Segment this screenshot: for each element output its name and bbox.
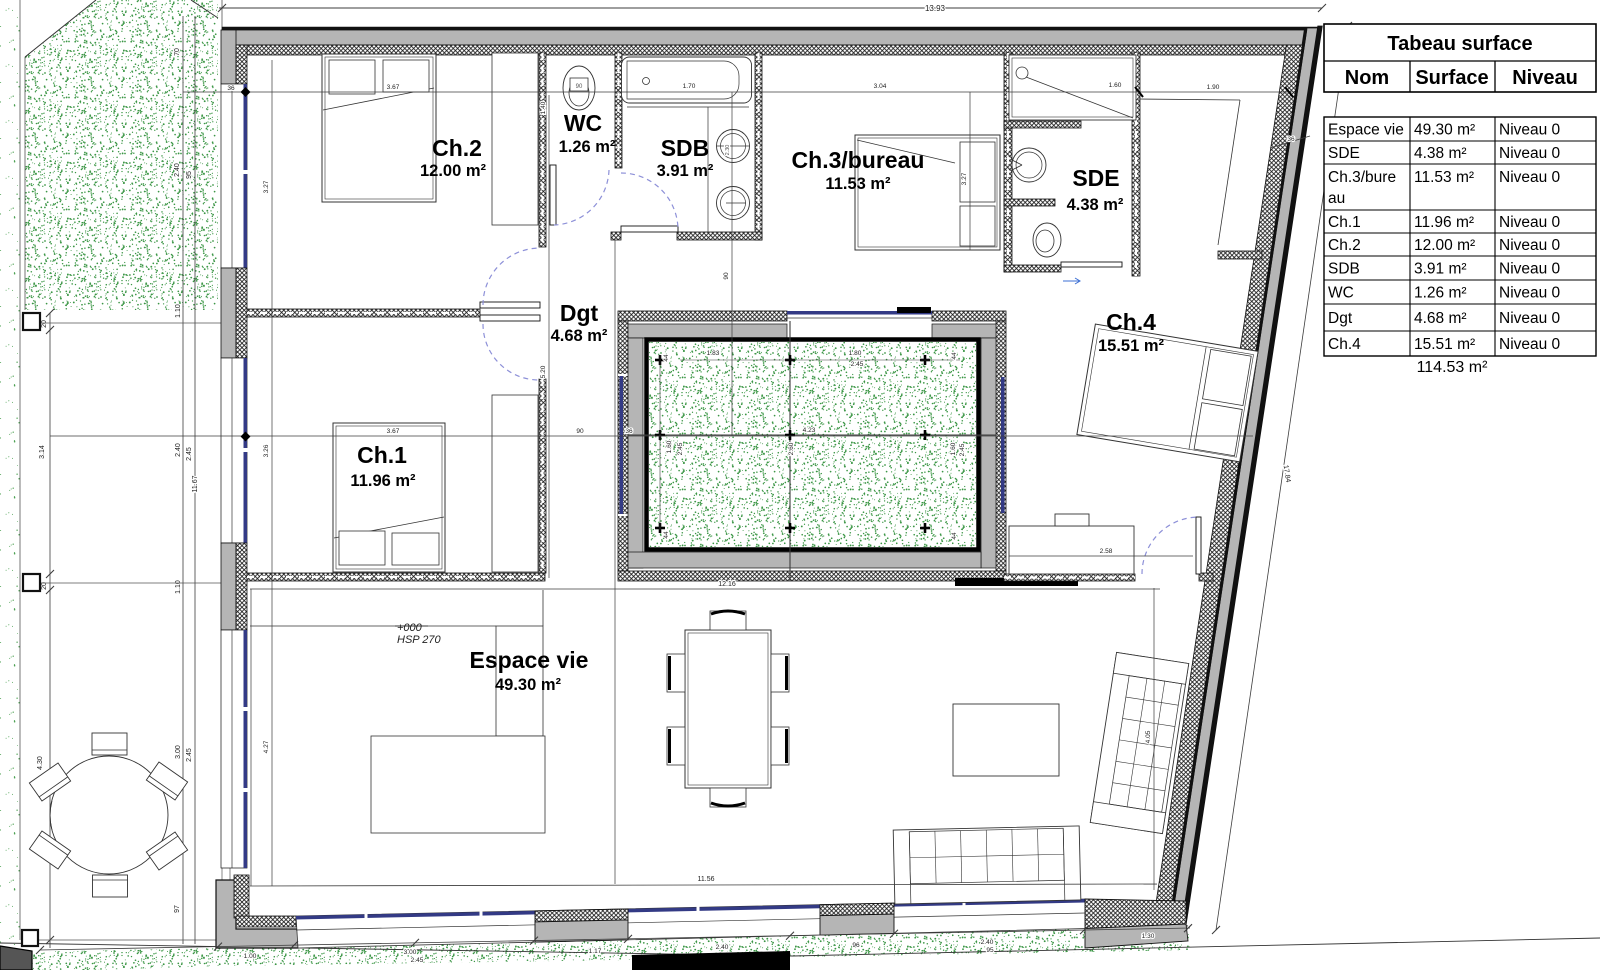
svg-text:Niveau 0: Niveau 0 [1499, 214, 1561, 231]
svg-text:Niveau 0: Niveau 0 [1499, 261, 1561, 278]
svg-text:13.93: 13.93 [925, 4, 946, 13]
svg-text:15.51 m²: 15.51 m² [1414, 336, 1475, 353]
svg-text:1.70: 1.70 [683, 83, 696, 90]
svg-text:2.30: 2.30 [725, 145, 731, 156]
svg-text:1.80: 1.80 [849, 350, 862, 357]
svg-text:1.90: 1.90 [1207, 84, 1220, 91]
svg-text:11.56: 11.56 [698, 876, 715, 883]
svg-text:96: 96 [852, 942, 860, 949]
svg-text:3.27: 3.27 [961, 172, 968, 185]
svg-text:20: 20 [41, 320, 48, 328]
svg-text:Espace vie: Espace vie [1328, 122, 1404, 139]
svg-text:Ch.3/bureau: Ch.3/bureau [792, 147, 925, 173]
svg-text:Dgt: Dgt [1328, 310, 1353, 327]
svg-text:Ch.4: Ch.4 [1106, 309, 1156, 335]
svg-text:Niveau 0: Niveau 0 [1499, 169, 1561, 186]
svg-text:Ch.3/bure: Ch.3/bure [1328, 169, 1396, 186]
svg-text:Nom: Nom [1345, 67, 1389, 89]
svg-text:3.67: 3.67 [387, 84, 400, 91]
svg-text:97: 97 [174, 905, 181, 913]
svg-text:95: 95 [186, 171, 193, 179]
svg-text:Ch.1: Ch.1 [357, 442, 407, 468]
svg-text:Niveau 0: Niveau 0 [1499, 237, 1561, 254]
svg-text:49.30 m²: 49.30 m² [1414, 122, 1475, 139]
svg-text:4.38 m²: 4.38 m² [1067, 196, 1124, 214]
svg-text:Tabeau surface: Tabeau surface [1387, 33, 1532, 55]
svg-text:3.91 m²: 3.91 m² [657, 162, 714, 180]
svg-text:11.96 m²: 11.96 m² [1414, 214, 1474, 231]
svg-text:90: 90 [723, 272, 730, 280]
svg-text:SDE: SDE [1328, 145, 1360, 162]
svg-text:3.00: 3.00 [175, 745, 182, 759]
svg-text:114.53 m²: 114.53 m² [1417, 359, 1489, 376]
svg-text:SDE: SDE [1072, 165, 1119, 191]
svg-text:Niveau: Niveau [1512, 67, 1578, 89]
svg-text:2.45: 2.45 [411, 957, 424, 964]
svg-text:44: 44 [951, 352, 958, 360]
svg-text:4.27: 4.27 [263, 740, 270, 753]
svg-text:4.23: 4.23 [803, 427, 816, 434]
svg-text:HSP 270: HSP 270 [397, 634, 442, 646]
svg-text:4.68 m²: 4.68 m² [1414, 310, 1467, 327]
svg-text:1.26 m²: 1.26 m² [559, 138, 616, 156]
svg-text:95: 95 [986, 947, 994, 954]
svg-text:1.17: 1.17 [589, 948, 602, 955]
svg-text:SDB: SDB [1328, 261, 1360, 278]
svg-text:2.40: 2.40 [716, 944, 729, 951]
svg-text:12.00 m²: 12.00 m² [420, 162, 487, 180]
svg-text:1.60: 1.60 [950, 442, 957, 455]
svg-text:36: 36 [1287, 136, 1295, 143]
svg-text:2.40: 2.40 [174, 163, 181, 177]
svg-text:2.45: 2.45 [186, 748, 193, 762]
svg-text:2.40: 2.40 [981, 939, 994, 946]
svg-text:4.30: 4.30 [37, 756, 44, 770]
svg-text:70: 70 [174, 48, 181, 56]
svg-text:1.26 m²: 1.26 m² [1414, 285, 1467, 302]
svg-text:3.26: 3.26 [263, 444, 270, 457]
svg-text:2.45: 2.45 [851, 361, 864, 368]
svg-text:Dgt: Dgt [560, 300, 599, 326]
svg-text:5.20: 5.20 [540, 365, 547, 378]
svg-text:1.83: 1.83 [707, 350, 720, 357]
svg-text:1.10: 1.10 [175, 304, 182, 318]
svg-text:Ch.2: Ch.2 [432, 135, 482, 161]
svg-text:90: 90 [576, 428, 584, 435]
svg-text:36: 36 [227, 85, 235, 92]
svg-text:3.04: 3.04 [874, 83, 887, 90]
svg-text:12.16: 12.16 [718, 581, 736, 588]
svg-text:4.05: 4.05 [1145, 730, 1152, 743]
svg-text:Espace vie: Espace vie [470, 647, 589, 673]
svg-text:1.60: 1.60 [666, 440, 673, 453]
svg-text:11.96 m²: 11.96 m² [350, 472, 416, 490]
svg-text:3.67: 3.67 [387, 428, 400, 435]
svg-text:Niveau 0: Niveau 0 [1499, 122, 1561, 139]
svg-text:49.30 m²: 49.30 m² [495, 676, 562, 694]
svg-text:2.58: 2.58 [1100, 548, 1113, 555]
svg-text:1.60: 1.60 [1109, 82, 1122, 89]
svg-text:2.60: 2.60 [788, 442, 795, 455]
svg-text:Niveau 0: Niveau 0 [1499, 285, 1561, 302]
svg-text:4.68 m²: 4.68 m² [551, 327, 608, 345]
svg-text:Niveau 0: Niveau 0 [1499, 336, 1561, 353]
svg-text:Surface: Surface [1415, 67, 1488, 89]
svg-text:3.00: 3.00 [404, 949, 417, 956]
svg-text:3.14: 3.14 [39, 445, 46, 459]
svg-text:1.00: 1.00 [244, 953, 257, 960]
svg-text:2.45: 2.45 [959, 443, 966, 456]
svg-text:1.40: 1.40 [540, 101, 547, 114]
svg-text:WC: WC [564, 110, 602, 136]
svg-text:3.27: 3.27 [263, 180, 270, 193]
svg-text:Ch.2: Ch.2 [1328, 237, 1361, 254]
svg-text:WC: WC [1328, 285, 1354, 302]
svg-text:15.51 m²: 15.51 m² [1098, 337, 1165, 355]
svg-text:Niveau 0: Niveau 0 [1499, 310, 1561, 327]
svg-text:2.40: 2.40 [175, 443, 182, 457]
svg-text:Ch.4: Ch.4 [1328, 336, 1361, 353]
svg-text:1.30: 1.30 [1142, 933, 1155, 940]
svg-text:11.67: 11.67 [192, 475, 199, 492]
svg-text:au: au [1328, 190, 1345, 207]
svg-text:44: 44 [663, 354, 670, 362]
svg-text:11.53 m²: 11.53 m² [825, 175, 891, 193]
svg-text:Niveau 0: Niveau 0 [1499, 145, 1561, 162]
svg-text:3.91 m²: 3.91 m² [1414, 261, 1467, 278]
svg-text:36: 36 [625, 428, 633, 435]
svg-text:44: 44 [663, 531, 670, 539]
svg-text:44: 44 [951, 532, 958, 540]
svg-text:+000: +000 [397, 622, 423, 634]
svg-text:1.10: 1.10 [175, 580, 182, 594]
svg-text:12.00 m²: 12.00 m² [1414, 237, 1475, 254]
svg-text:4.38 m²: 4.38 m² [1414, 145, 1467, 162]
svg-text:2.45: 2.45 [186, 447, 193, 461]
svg-text:Ch.1: Ch.1 [1328, 214, 1361, 231]
svg-text:90: 90 [576, 84, 583, 90]
svg-text:11.53 m²: 11.53 m² [1414, 169, 1474, 186]
svg-text:2.45: 2.45 [677, 442, 684, 455]
svg-text:SDB: SDB [661, 135, 710, 161]
